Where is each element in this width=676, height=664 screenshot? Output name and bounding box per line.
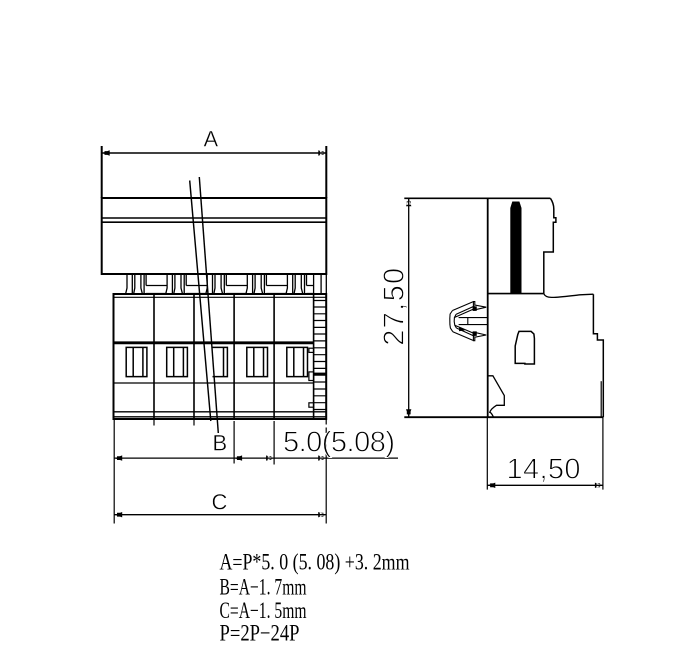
svg-text:A=P*5. 0 (5. 08) +3. 2mm: A=P*5. 0 (5. 08) +3. 2mm xyxy=(220,550,410,575)
svg-text:27,50: 27,50 xyxy=(379,268,411,346)
svg-text:14,50: 14,50 xyxy=(507,454,581,486)
svg-text:C=A−1. 5mm: C=A−1. 5mm xyxy=(220,598,307,623)
svg-text:P=2P−24P: P=2P−24P xyxy=(220,621,300,646)
svg-text:B: B xyxy=(213,431,228,456)
svg-text:A: A xyxy=(204,127,219,152)
svg-text:5.0(5.08): 5.0(5.08) xyxy=(283,427,395,459)
svg-text:B=A−1. 7mm: B=A−1. 7mm xyxy=(220,575,307,600)
svg-text:C: C xyxy=(212,490,228,515)
